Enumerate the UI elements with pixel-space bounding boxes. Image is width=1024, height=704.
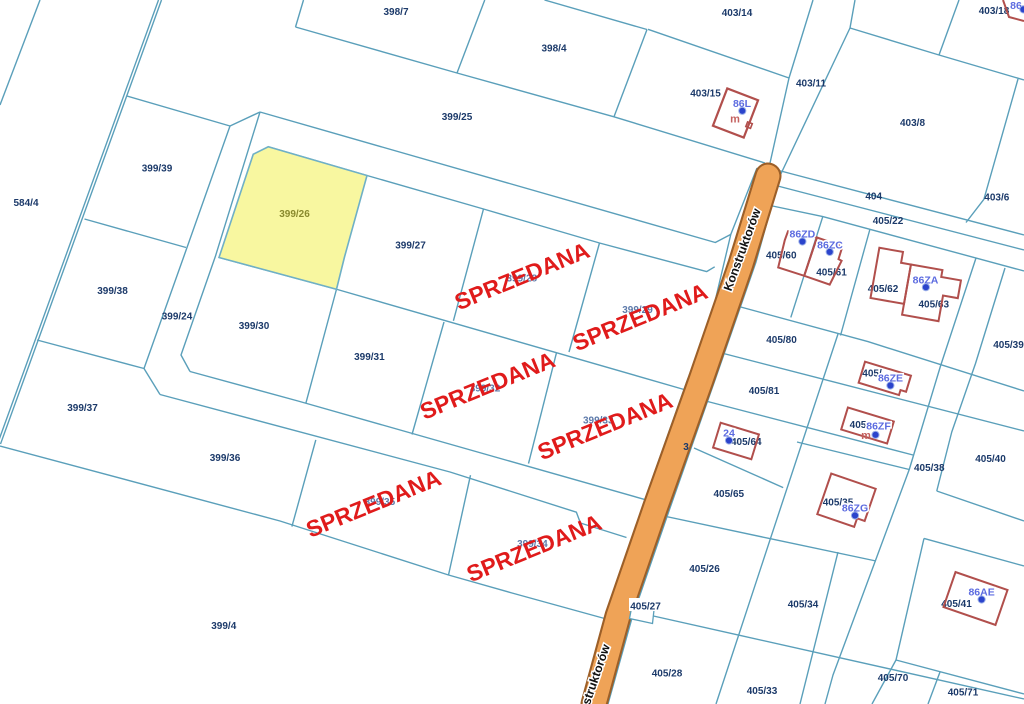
svg-text:399/4: 399/4 <box>211 621 236 632</box>
svg-text:404: 404 <box>865 192 882 203</box>
svg-text:399/24: 399/24 <box>162 311 193 322</box>
svg-text:405/27: 405/27 <box>630 602 661 613</box>
svg-text:405/34: 405/34 <box>788 599 819 610</box>
svg-text:403/8: 403/8 <box>900 118 925 129</box>
svg-text:399/39: 399/39 <box>142 164 173 175</box>
svg-text:399/36: 399/36 <box>210 453 241 464</box>
svg-text:399/26: 399/26 <box>279 209 310 220</box>
svg-text:399/37: 399/37 <box>67 403 98 414</box>
svg-text:403/11: 403/11 <box>796 79 826 90</box>
svg-text:405/80: 405/80 <box>766 335 797 346</box>
svg-text:405/81: 405/81 <box>749 386 780 397</box>
svg-text:405/39: 405/39 <box>993 340 1024 351</box>
svg-text:405/28: 405/28 <box>652 669 683 680</box>
svg-text:405/22: 405/22 <box>873 216 904 227</box>
svg-text:405/65: 405/65 <box>714 489 745 500</box>
svg-text:399/27: 399/27 <box>395 240 426 251</box>
svg-text:399/30: 399/30 <box>239 321 270 332</box>
svg-text:405/33: 405/33 <box>747 686 778 697</box>
svg-text:403/15: 403/15 <box>690 89 721 100</box>
svg-text:403/6: 403/6 <box>984 193 1009 204</box>
svg-text:405/63: 405/63 <box>918 300 949 311</box>
svg-text:m: m <box>730 114 740 126</box>
svg-text:403/14: 403/14 <box>722 8 753 19</box>
svg-text:m: m <box>861 430 871 442</box>
svg-text:584/4: 584/4 <box>13 198 38 209</box>
svg-text:405/71: 405/71 <box>948 688 979 699</box>
svg-text:3: 3 <box>683 442 689 453</box>
svg-text:398/4: 398/4 <box>541 44 566 55</box>
svg-text:405/26: 405/26 <box>689 564 720 575</box>
svg-text:399/38: 399/38 <box>97 286 128 297</box>
svg-text:405/38: 405/38 <box>914 463 945 474</box>
svg-text:405/70: 405/70 <box>878 673 909 684</box>
svg-text:398/7: 398/7 <box>383 7 408 18</box>
svg-text:405/40: 405/40 <box>975 454 1006 465</box>
svg-text:399/31: 399/31 <box>354 352 385 363</box>
svg-text:405/61: 405/61 <box>816 268 847 279</box>
svg-text:399/25: 399/25 <box>442 112 473 123</box>
